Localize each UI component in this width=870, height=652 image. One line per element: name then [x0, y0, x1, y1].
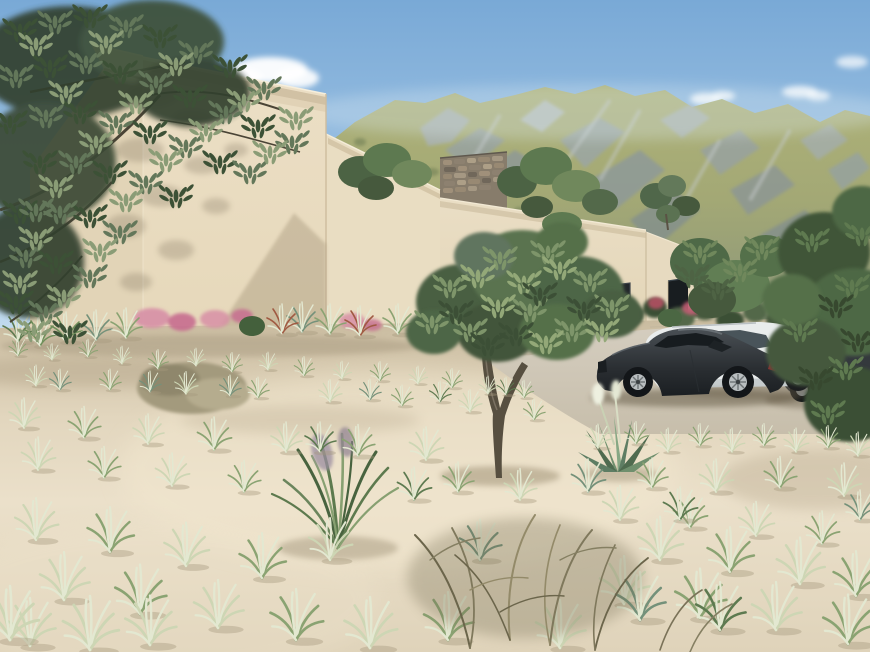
villa-scene: [0, 0, 870, 652]
architectural-render-image: [0, 0, 870, 652]
